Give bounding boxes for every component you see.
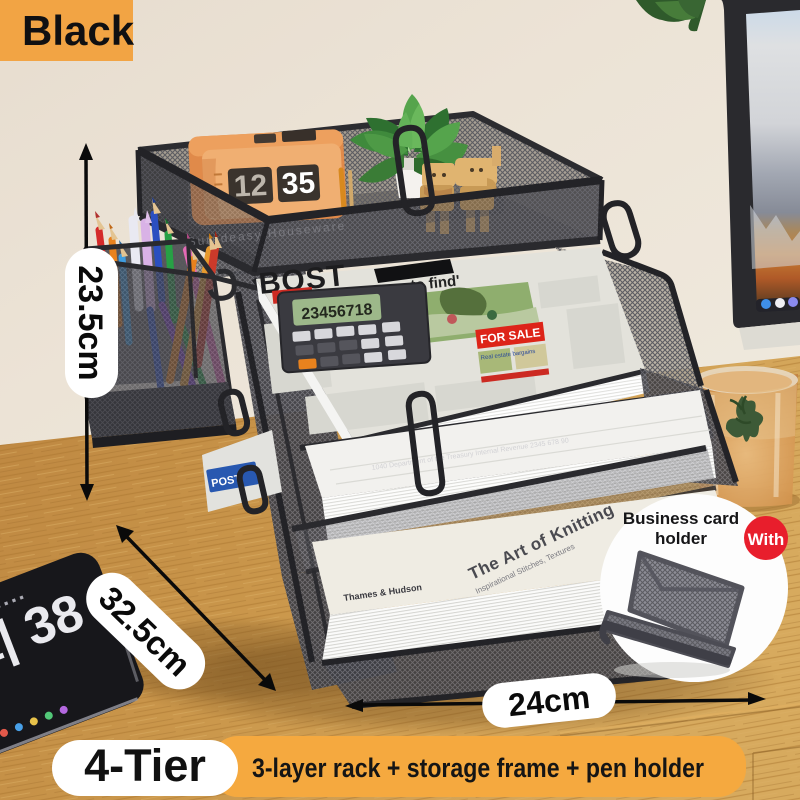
svg-text:Business card: Business card: [623, 509, 739, 528]
svg-text:Black: Black: [22, 7, 135, 54]
svg-text:With: With: [748, 530, 785, 549]
svg-text:3-layer rack + storage frame +: 3-layer rack + storage frame + pen holde…: [252, 753, 704, 783]
svg-text:23.5cm: 23.5cm: [71, 265, 109, 380]
svg-text:12: 12: [233, 169, 268, 204]
svg-text:35: 35: [281, 166, 316, 201]
svg-text:4-Tier: 4-Tier: [84, 740, 206, 791]
svg-text:holder: holder: [655, 529, 707, 548]
